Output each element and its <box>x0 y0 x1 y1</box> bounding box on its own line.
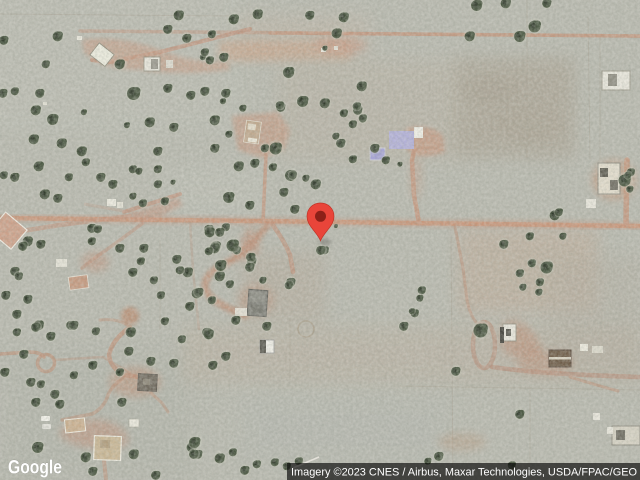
svg-text:Imagery ©2023 CNES / Airbus, M: Imagery ©2023 CNES / Airbus, Maxar Techn… <box>291 467 637 479</box>
svg-text:Google: Google <box>8 457 62 479</box>
